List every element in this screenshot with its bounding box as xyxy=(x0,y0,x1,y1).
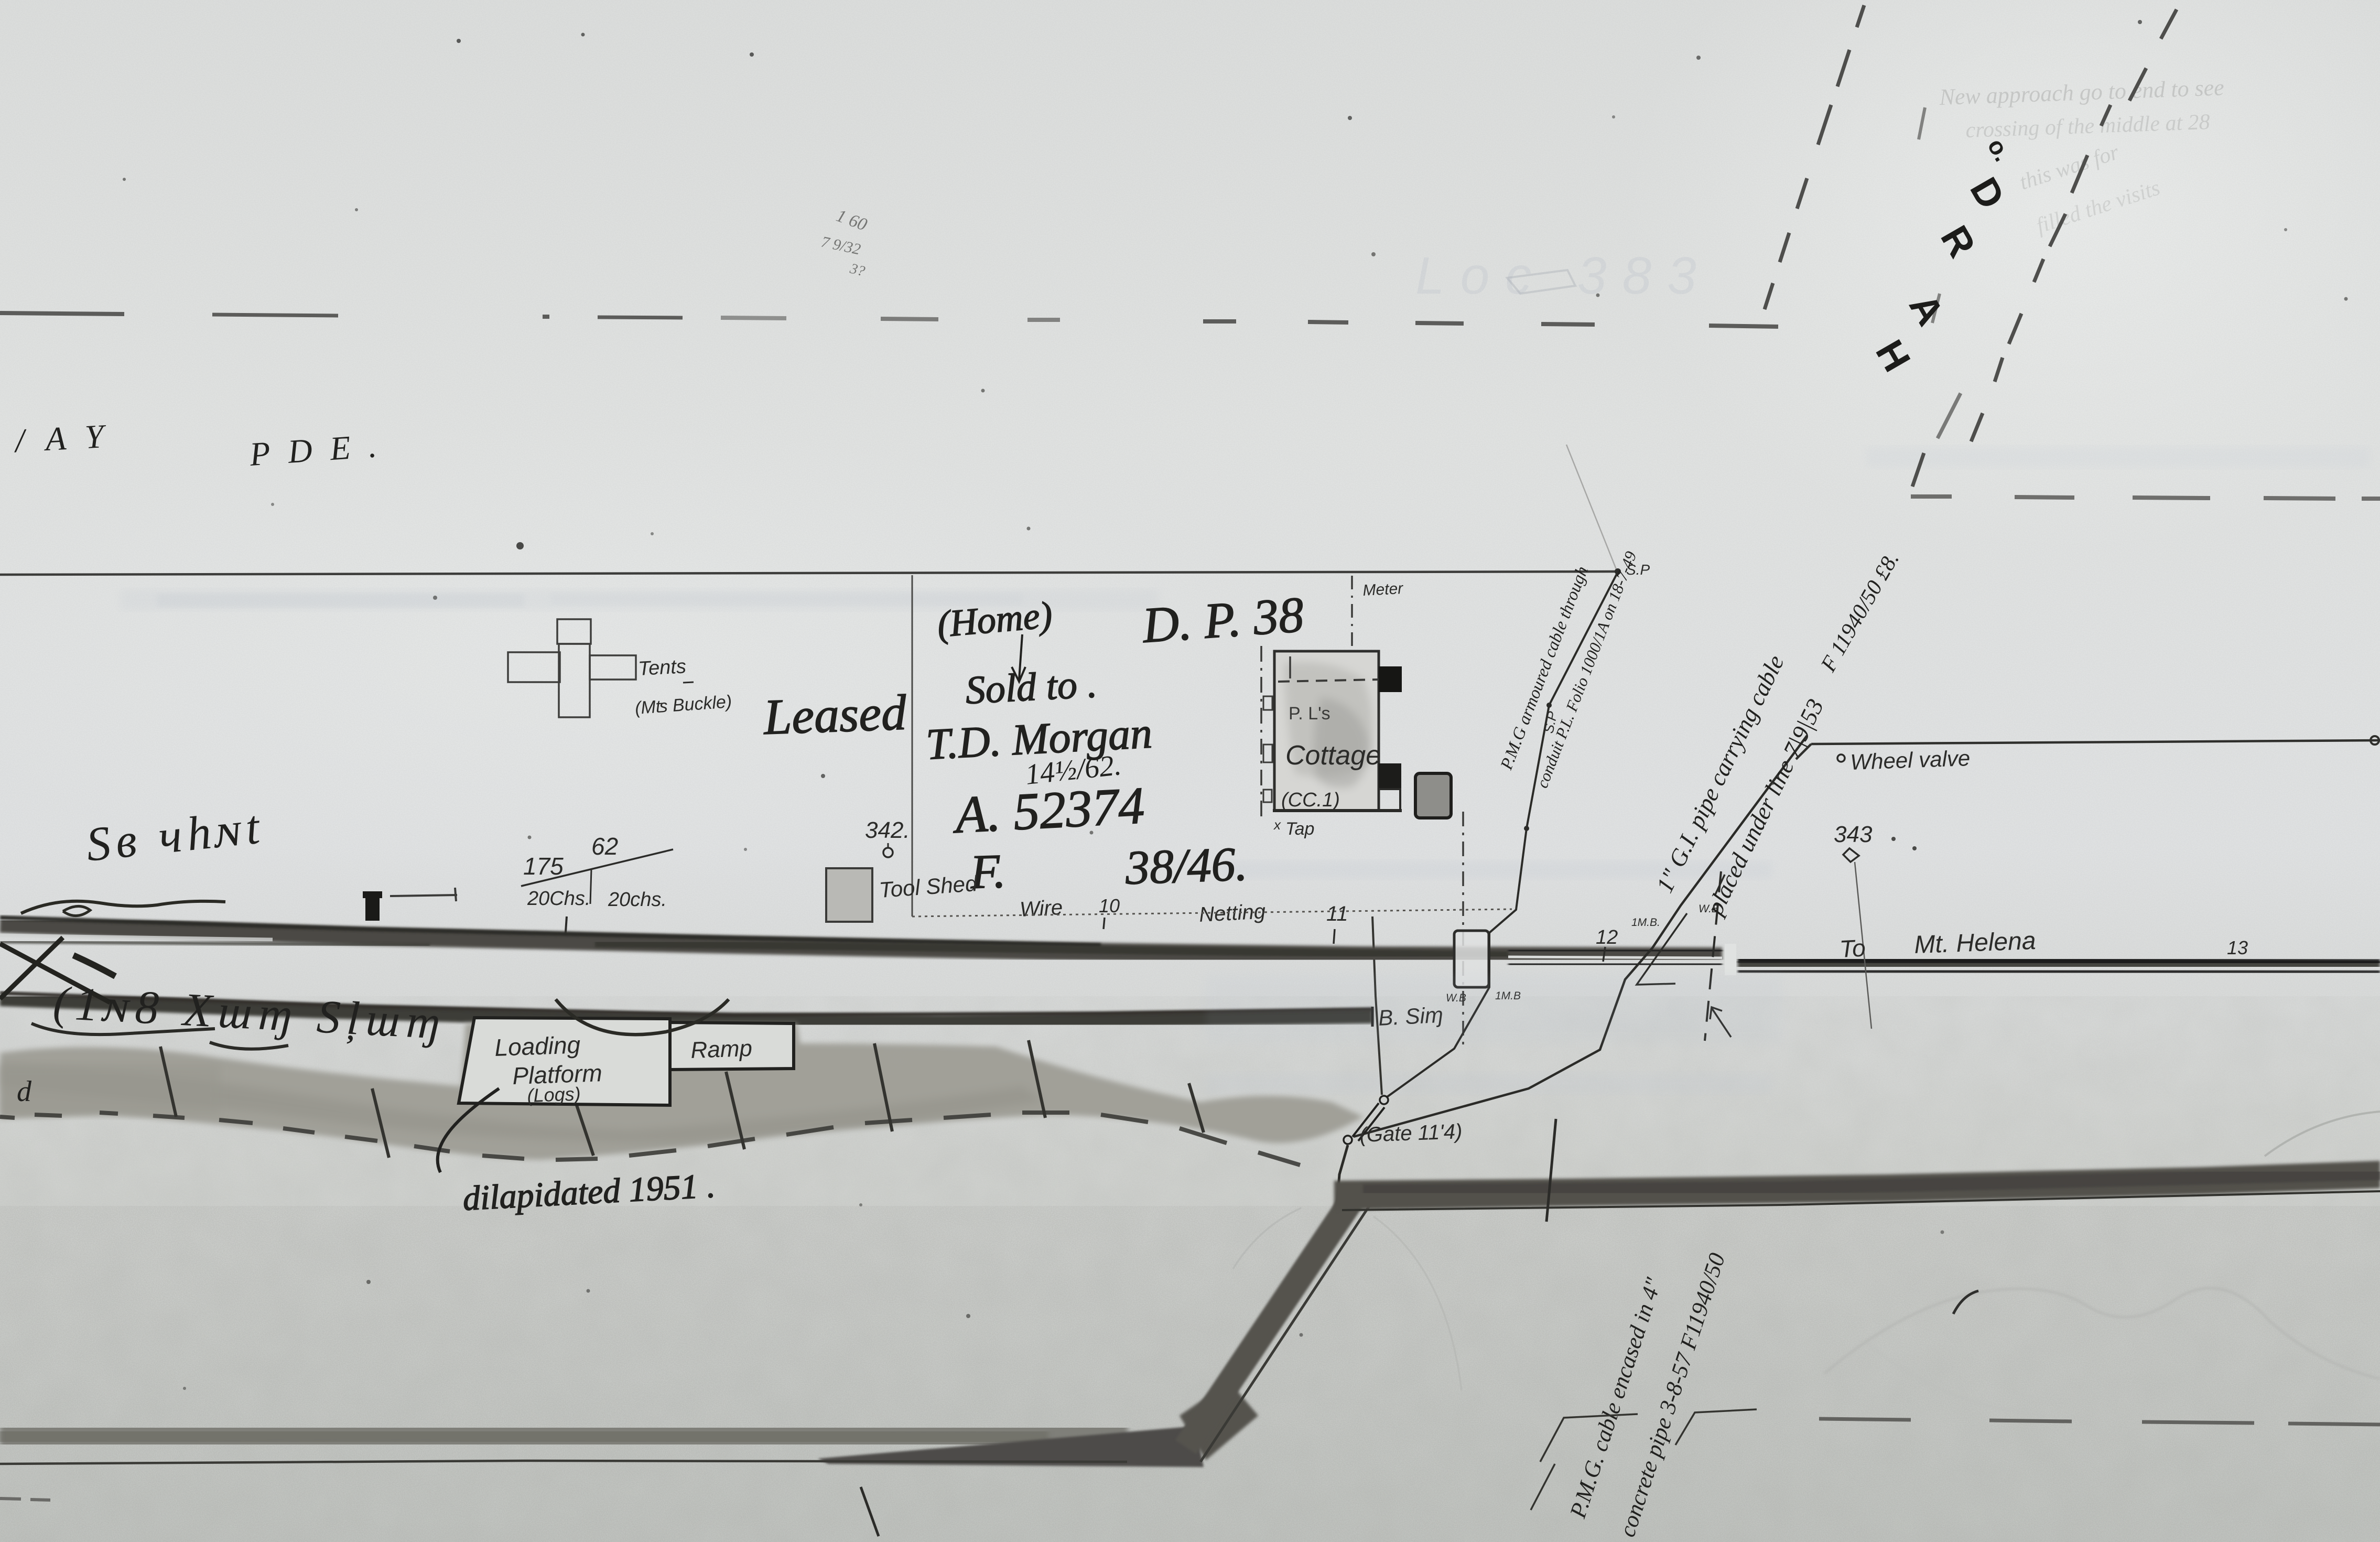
svg-text:62: 62 xyxy=(591,833,618,860)
svg-text:12: 12 xyxy=(1596,926,1618,948)
svg-text:(Gate 11'4): (Gate 11'4) xyxy=(1359,1120,1463,1147)
svg-text:/AY: /AY xyxy=(13,416,125,459)
svg-text:38/46.: 38/46. xyxy=(1124,837,1248,894)
svg-text:Mt. Helena: Mt. Helena xyxy=(1914,927,2037,959)
svg-text:Meter: Meter xyxy=(1362,580,1404,599)
svg-text:d: d xyxy=(17,1075,32,1108)
svg-text:175: 175 xyxy=(523,853,564,880)
svg-text:Tap: Tap xyxy=(1285,819,1314,839)
svg-text:343: 343 xyxy=(1834,822,1873,847)
svg-text:Tents: Tents xyxy=(637,655,687,680)
svg-text:x: x xyxy=(1273,817,1281,833)
svg-text:(CC.1): (CC.1) xyxy=(1281,789,1340,811)
svg-text:A. 52374: A. 52374 xyxy=(950,776,1145,844)
svg-text:P. L's: P. L's xyxy=(1289,704,1330,724)
svg-text:20chs.: 20chs. xyxy=(608,889,667,911)
svg-text:Wire: Wire xyxy=(1019,896,1063,921)
svg-text:Loc 383: Loc 383 xyxy=(1415,246,1712,305)
svg-text:Ramp: Ramp xyxy=(690,1036,753,1063)
svg-text:D. P. 38: D. P. 38 xyxy=(1140,586,1305,653)
svg-text:1M.B.: 1M.B. xyxy=(1631,916,1660,929)
svg-text:13: 13 xyxy=(2227,937,2248,958)
svg-text:342.: 342. xyxy=(865,817,910,843)
svg-text:20Chs.: 20Chs. xyxy=(527,888,590,910)
svg-text:Loading: Loading xyxy=(494,1031,581,1061)
svg-text:11: 11 xyxy=(1326,902,1348,925)
svg-text:To: To xyxy=(1839,934,1866,963)
svg-text:(Logs): (Logs) xyxy=(527,1083,581,1106)
svg-text:10: 10 xyxy=(1099,895,1120,916)
svg-text:Leased: Leased xyxy=(762,684,908,746)
svg-text:Wheel valve: Wheel valve xyxy=(1850,746,1971,774)
svg-text:Cottage: Cottage xyxy=(1285,740,1381,771)
svg-text:Sold to .: Sold to . xyxy=(964,662,1098,713)
